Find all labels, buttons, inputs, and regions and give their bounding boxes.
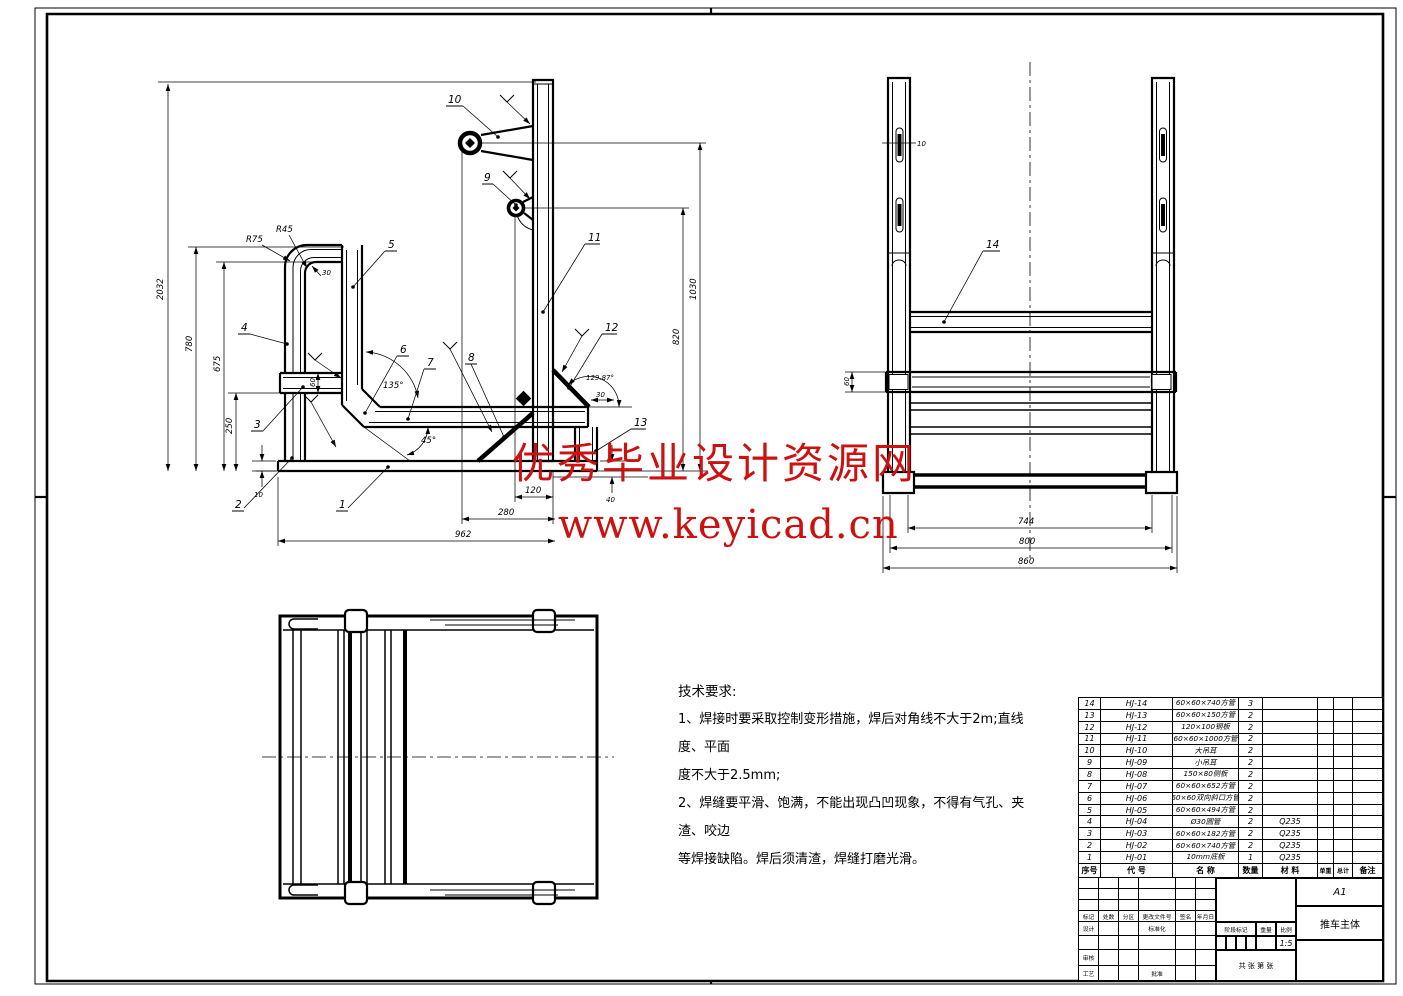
bom-cell: 2 [1239,757,1263,769]
title-block: 标记处数分区更改文件号签名年月日 设计标准化 审核 工艺批准 阶段标记 重量 比… [1078,877,1383,981]
bom-cell: HJ-04 [1101,816,1173,828]
bom-row: 1HJ-0110mm底板1Q235 [1079,852,1382,864]
balloon-7: 7 [427,357,434,369]
bom-cell: 120×100钢板 [1173,722,1239,734]
tech-req-title: 技术要求: [678,678,1048,706]
bom-header-cell: 备注 [1353,864,1382,878]
bom-row: 7HJ-0760×60×652方管2 [1079,781,1382,793]
bom-cell: HJ-13 [1101,710,1173,722]
bom-cell: HJ-03 [1101,828,1173,840]
bom-cell: 60×60×652方管 [1173,781,1239,793]
bom-cell [1334,769,1353,781]
bom-cell [1318,781,1334,793]
bom-row: 14HJ-1460×60×740方管3 [1079,698,1382,710]
balloon-12: 12 [605,322,619,334]
bom-cell [1334,710,1353,722]
bom-row: 3HJ-0360×60×182方管2Q235 [1079,828,1382,840]
bom-cell [1318,710,1334,722]
dim-radius-outer: R75 [246,235,263,245]
bom-cell: 6 [1079,793,1101,805]
bom-cell [1263,698,1318,710]
bom-cell [1353,769,1382,781]
watermark-site-url: www.keyicad.cn [558,502,899,548]
bom-cell: 14 [1079,698,1101,710]
bom-row: 9HJ-09小吊耳2 [1079,757,1382,769]
top-view [262,610,614,904]
bom-row: 5HJ-0560×60×494方管2 [1079,805,1382,817]
stage-box [1216,936,1226,950]
bom-cell: HJ-09 [1101,757,1173,769]
bom-cell: 7 [1079,781,1101,793]
bom-header-cell: 代 号 [1101,864,1173,878]
bom-cell [1334,805,1353,817]
dim-angle-129: 129.87° [586,374,614,382]
bom-cell [1353,745,1382,757]
bom-cell [1334,698,1353,710]
bom-row: 10HJ-10大吊耳2 [1079,745,1382,757]
dim-mid-height: 675 [213,356,223,372]
bom-table: 14HJ-1460×60×740方管3 13HJ-1360×60×150方管2 … [1078,697,1383,879]
balloon-11: 11 [588,232,601,244]
dim-744: 744 [1018,517,1034,527]
bom-cell: 150×80侧板 [1173,769,1239,781]
bom-cell: 3 [1239,698,1263,710]
bom-header-cell: 单重 [1318,864,1334,878]
dim-860: 860 [1018,557,1034,567]
label-stage: 阶段标记 [1216,922,1256,936]
sheet-count-cell: 共 张 第 张 [1216,950,1296,982]
bom-cell [1318,816,1334,828]
bom-cell: HJ-08 [1101,769,1173,781]
watermark-site-name: 优秀毕业设计资源网 [512,430,917,491]
balloon-10: 10 [448,94,462,106]
bom-cell [1263,734,1318,746]
bom-cell: 60×60×494方管 [1173,805,1239,817]
bom-cell: HJ-06 [1101,793,1173,805]
stage-box [1246,936,1256,950]
dim-angle-135: 135° [383,381,403,391]
bom-cell: HJ-12 [1101,722,1173,734]
bom-cell: Q235 [1263,852,1318,864]
label-check: 审核 [1079,950,1099,966]
title-block-blank-cell [1216,878,1296,922]
bom-cell: 9 [1079,757,1101,769]
bom-cell: Q235 [1263,828,1318,840]
bom-row: 6HJ-0660×60双向斜口方管2 [1079,793,1382,805]
bom-cell: 3 [1079,828,1101,840]
balloon-8: 8 [468,352,475,364]
label-standard: 标准化 [1139,922,1176,936]
bom-cell [1318,722,1334,734]
part-name: 推车主体 [1296,906,1384,940]
bom-cell: 60×60×740方管 [1173,840,1239,852]
bom-cell: 10 [1079,745,1101,757]
bom-cell [1353,698,1382,710]
bom-cell: 1 [1239,852,1263,864]
bom-cell: 13 [1079,710,1101,722]
title-block-revision-grid: 标记处数分区更改文件号签名年月日 设计标准化 审核 工艺批准 [1079,878,1216,982]
bom-cell [1263,793,1318,805]
balloon-13: 13 [634,417,647,429]
bom-cell: 11 [1079,734,1101,746]
bom-cell [1353,734,1382,746]
bom-cell [1263,781,1318,793]
bom-cell: 60×60×740方管 [1173,698,1239,710]
drawing-number-cell [1296,940,1384,982]
side-structure [883,62,1177,560]
dim-radius-inner: R45 [276,225,293,235]
bom-cell [1334,745,1353,757]
bom-cell [1318,745,1334,757]
bom-row: 11HJ-1160×60×1000方管2 [1079,734,1382,746]
bom-cell [1353,793,1382,805]
balloon-9: 9 [484,172,491,184]
bom-header-cell: 数量 [1239,864,1263,878]
bom-cell: 2 [1239,828,1263,840]
dim-bend-30: 30 [322,269,331,277]
label-sign: 签名 [1176,911,1196,922]
bom-cell: Ø30圆管 [1173,816,1239,828]
dim-820: 820 [672,329,682,345]
bom-cell [1334,852,1353,864]
bom-cell: HJ-11 [1101,734,1173,746]
bom-cell: 2 [1239,734,1263,746]
weight-value-cell [1256,936,1276,950]
label-design: 设计 [1079,922,1099,936]
bom-cell: Q235 [1263,840,1318,852]
label-count: 处数 [1099,911,1119,922]
bom-cell: HJ-14 [1101,698,1173,710]
bom-cell: HJ-02 [1101,840,1173,852]
dim-lower-height: 250 [225,418,235,434]
balloon-6: 6 [400,344,407,356]
dim-rail-60: 60 [843,377,851,386]
bom-cell [1353,710,1382,722]
tech-req-line-1: 1、焊接时要采取控制变形措施，焊后对角线不大于2m;直线度、平面 [678,706,1048,762]
bom-cell [1353,840,1382,852]
bom-cell [1334,734,1353,746]
bom-cell: 大吊耳 [1173,745,1239,757]
bom-cell [1263,722,1318,734]
bom-cell: HJ-05 [1101,805,1173,817]
bom-cell [1334,757,1353,769]
label-change-doc: 更改文件号 [1139,911,1176,922]
bom-cell [1263,757,1318,769]
bom-cell [1353,805,1382,817]
side-view: 10 60 744 800 860 14 [843,62,1177,573]
dim-post-width: 60 [309,378,317,387]
dim-offset-30: 30 [596,391,605,399]
dim-total-height: 2032 [156,278,166,300]
tech-req-line-3: 2、焊缝要平滑、饱满，不能出现凸凹现象，不得有气孔、夹渣、咬边 [678,790,1048,846]
stage-box [1236,936,1246,950]
bom-cell [1353,722,1382,734]
stage-box [1226,936,1236,950]
scale-value: 1:5 [1276,936,1296,950]
bom-cell: 2 [1239,781,1263,793]
bom-cell [1334,840,1353,852]
bom-cell [1318,828,1334,840]
bom-cell [1318,793,1334,805]
bom-header-row: 序号代 号名 称数量材 料单重总计备注 [1079,864,1382,878]
bom-row: 8HJ-08150×80侧板2 [1079,769,1382,781]
bom-header-cell: 总计 [1334,864,1353,878]
dim-280: 280 [498,508,514,518]
bom-cell: 2 [1239,816,1263,828]
bom-cell [1263,769,1318,781]
bom-cell: Q235 [1263,816,1318,828]
bom-cell: 4 [1079,816,1101,828]
bom-cell: 12 [1079,722,1101,734]
bom-cell: 2 [1239,745,1263,757]
label-approve: 批准 [1139,966,1176,982]
dim-handle-height: 780 [185,336,195,352]
bom-cell [1334,828,1353,840]
dim-962: 962 [455,530,471,540]
bom-cell [1318,852,1334,864]
bom-cell [1318,698,1334,710]
balloon-3: 3 [254,419,261,431]
bom-cell [1318,734,1334,746]
bom-cell [1318,769,1334,781]
bom-cell [1334,816,1353,828]
bom-cell [1263,805,1318,817]
sheet-size: A1 [1296,878,1384,906]
bom-cell [1353,781,1382,793]
dim-slot-10: 10 [917,140,926,148]
bom-cell: 8 [1079,769,1101,781]
bom-cell [1353,757,1382,769]
label-zone: 分区 [1119,911,1139,922]
balloon-14: 14 [986,239,999,251]
bom-cell [1353,828,1382,840]
bom-cell: 5 [1079,805,1101,817]
bom-cell: 60×60双向斜口方管 [1173,793,1239,805]
bom-cell: 2 [1239,710,1263,722]
bom-cell: 2 [1239,769,1263,781]
bom-row: 12HJ-12120×100钢板2 [1079,722,1382,734]
balloon-5: 5 [388,239,395,251]
label-mark: 标记 [1079,911,1099,922]
balloon-1: 1 [339,499,346,511]
tech-req-line-2: 度不大于2.5mm; [678,762,1048,790]
bom-cell: 小吊耳 [1173,757,1239,769]
technical-requirements: 技术要求: 1、焊接时要采取控制变形措施，焊后对角线不大于2m;直线度、平面 度… [678,678,1048,874]
bom-cell [1318,805,1334,817]
bom-cell [1318,840,1334,852]
bom-cell [1334,793,1353,805]
bom-cell: 60×60×150方管 [1173,710,1239,722]
bom-cell: 2 [1239,722,1263,734]
balloon-2: 2 [235,499,242,511]
bom-cell: 2 [1239,793,1263,805]
bom-cell: 2 [1239,840,1263,852]
dim-800: 800 [1019,537,1035,547]
bom-cell [1353,852,1382,864]
bom-cell: HJ-01 [1101,852,1173,864]
bom-header-cell: 材 料 [1263,864,1318,878]
bom-row: 2HJ-0260×60×740方管2Q235 [1079,840,1382,852]
bom-cell: 60×60×182方管 [1173,828,1239,840]
bom-cell: 2 [1079,840,1101,852]
bom-cell: 1 [1079,852,1101,864]
bom-cell [1263,745,1318,757]
dim-1030: 1030 [689,278,699,300]
drawing-sheet: 2032 780 675 250 10 1030 820 120 280 962 [0,0,1403,992]
bom-header-cell: 序号 [1079,864,1101,878]
label-date: 年月日 [1196,911,1216,922]
label-ratio: 比例 [1276,922,1296,936]
bom-cell: HJ-07 [1101,781,1173,793]
bom-cell: 60×60×1000方管 [1173,734,1239,746]
bom-cell [1334,722,1353,734]
bom-cell [1318,757,1334,769]
bom-row: 4HJ-04Ø30圆管2Q235 [1079,816,1382,828]
dim-angle-45: 45° [421,436,436,446]
bom-cell [1353,816,1382,828]
balloon-4: 4 [241,322,248,334]
bom-cell: 10mm底板 [1173,852,1239,864]
bom-header-cell: 名 称 [1173,864,1239,878]
label-process: 工艺 [1079,966,1099,982]
label-weight: 重量 [1256,922,1276,936]
bom-cell: 2 [1239,805,1263,817]
bom-cell [1263,710,1318,722]
bom-cell [1334,781,1353,793]
tech-req-line-4: 等焊接缺陷。焊后须清渣，焊缝打磨光滑。 [678,846,1048,874]
bom-cell: HJ-10 [1101,745,1173,757]
bom-row: 13HJ-1360×60×150方管2 [1079,710,1382,722]
